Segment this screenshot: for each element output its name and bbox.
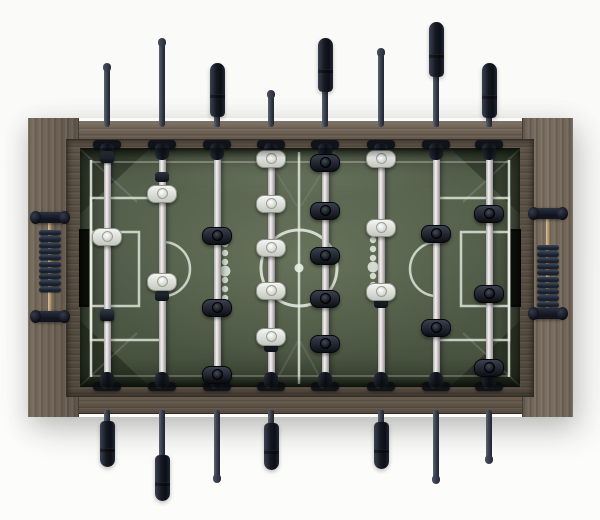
cap-knob-right bbox=[59, 310, 70, 323]
player-head bbox=[266, 198, 277, 209]
score-counter-right-bead-4 bbox=[537, 264, 559, 269]
field-bottom-shadow bbox=[80, 375, 520, 387]
score-counter-right-bead-1 bbox=[537, 245, 559, 250]
score-counter-left-bead-10 bbox=[39, 287, 61, 292]
player-head bbox=[320, 157, 331, 168]
rod-5-player-black-3 bbox=[310, 247, 340, 265]
score-counter-left-bead-8 bbox=[39, 274, 61, 279]
score-counter-right-cap-top bbox=[530, 208, 566, 219]
score-counter-left-bead-1 bbox=[39, 230, 61, 235]
cap-knob-right bbox=[59, 211, 70, 224]
rod-1-handle-grip-bottom bbox=[100, 421, 115, 467]
rod-6-handle-grip-bottom bbox=[374, 422, 389, 469]
rod-7-player-black-1 bbox=[421, 225, 451, 243]
cap-knob-right bbox=[557, 207, 568, 220]
rod-3-bottom-tip bbox=[214, 410, 220, 478]
rod-5-handle-grip-top bbox=[318, 38, 333, 92]
player-head bbox=[212, 302, 223, 313]
cap-knob-right bbox=[557, 307, 568, 320]
play-field bbox=[80, 148, 520, 387]
grip-ring bbox=[210, 94, 225, 98]
rod-3-handle-grip-top bbox=[210, 63, 225, 117]
cap-knob-left bbox=[30, 211, 41, 224]
rod-7-shaft bbox=[433, 150, 440, 382]
rod-7-bottom-tip-cap bbox=[432, 475, 440, 484]
player-head bbox=[320, 250, 331, 261]
rod-6-top-tip bbox=[378, 52, 384, 127]
player-head bbox=[431, 228, 442, 239]
rod-5-player-black-5 bbox=[310, 335, 340, 353]
rod-3-shaft bbox=[214, 150, 221, 382]
rod-3-bottom-tip-cap bbox=[213, 474, 221, 483]
grip-ring bbox=[100, 448, 115, 452]
score-counter-left-bead-3 bbox=[39, 243, 61, 248]
rod-2-stopper-2 bbox=[155, 291, 169, 301]
player-head bbox=[320, 338, 331, 349]
rod-4-player-white-3 bbox=[256, 239, 286, 257]
grip-ring bbox=[318, 69, 333, 73]
rod-6-top-tip-cap bbox=[377, 48, 385, 57]
player-head bbox=[484, 362, 495, 373]
rod-2-stopper-1 bbox=[155, 172, 169, 182]
score-counter-right-bead-10 bbox=[537, 302, 559, 307]
rod-6-shaft bbox=[378, 150, 385, 382]
player-head bbox=[320, 293, 331, 304]
foosball-table-photo bbox=[0, 0, 600, 520]
cap-knob-left bbox=[528, 207, 539, 220]
player-head bbox=[431, 322, 442, 333]
score-counter-right-bead-6 bbox=[537, 277, 559, 282]
rod-7-player-black-2 bbox=[421, 319, 451, 337]
rod-8-shaft bbox=[486, 150, 493, 382]
player-head bbox=[376, 222, 387, 233]
rod-3-player-black-1 bbox=[202, 227, 232, 245]
rod-1-top-tip bbox=[104, 67, 110, 127]
score-counter-right-bead-5 bbox=[537, 270, 559, 275]
player-head bbox=[266, 331, 277, 342]
grip-ring bbox=[429, 54, 444, 58]
rod-1-shaft bbox=[104, 150, 111, 382]
rod-7-bottom-tip bbox=[433, 410, 439, 479]
player-head bbox=[266, 242, 277, 253]
player-head bbox=[376, 286, 387, 297]
player-head bbox=[157, 188, 168, 199]
rod-3-player-black-2 bbox=[202, 299, 232, 317]
rod-8-player-black-1 bbox=[474, 205, 504, 223]
rod-6-player-white-3 bbox=[366, 283, 396, 301]
cap-knob-left bbox=[30, 310, 41, 323]
score-counter-left-bead-4 bbox=[39, 249, 61, 254]
rod-8-bottom-tip bbox=[486, 410, 492, 459]
score-counter-left-bead-2 bbox=[39, 236, 61, 241]
score-counter-left-bead-5 bbox=[39, 255, 61, 260]
rod-7-handle-grip-top bbox=[429, 22, 444, 77]
score-counter-right-cap-bottom bbox=[530, 308, 566, 319]
rod-5-player-black-2 bbox=[310, 202, 340, 220]
player-head bbox=[484, 208, 495, 219]
rod-1-bumper-3 bbox=[100, 309, 114, 321]
rod-4-player-white-2 bbox=[256, 195, 286, 213]
field-top-shadow bbox=[80, 148, 520, 158]
grip-ring bbox=[264, 450, 279, 454]
score-counter-left-cap-top bbox=[32, 212, 68, 223]
rod-4-player-white-4 bbox=[256, 282, 286, 300]
rod-8-player-black-3 bbox=[474, 359, 504, 377]
score-counter-left-cap-bottom bbox=[32, 311, 68, 322]
cap-knob-left bbox=[528, 307, 539, 320]
score-counter-left-bead-7 bbox=[39, 268, 61, 273]
score-counter-right-bead-8 bbox=[537, 289, 559, 294]
rod-2-bottom-shaft bbox=[159, 410, 165, 457]
grip-ring bbox=[155, 482, 170, 486]
player-head bbox=[320, 205, 331, 216]
goal-right bbox=[508, 229, 521, 307]
player-head bbox=[157, 276, 168, 287]
grip-ring bbox=[482, 95, 497, 99]
score-counter-right-bead-9 bbox=[537, 295, 559, 300]
score-counter-left-bead-9 bbox=[39, 280, 61, 285]
rod-1-player-white-2 bbox=[92, 228, 122, 246]
player-head bbox=[266, 285, 277, 296]
rod-4-player-white-5 bbox=[256, 328, 286, 346]
player-head bbox=[212, 230, 223, 241]
rod-2-player-white-2 bbox=[147, 273, 177, 291]
rod-4-top-tip-cap bbox=[267, 90, 275, 99]
goal-left bbox=[79, 229, 92, 307]
score-counter-right-bead-7 bbox=[537, 283, 559, 288]
rod-6-player-white-2 bbox=[366, 219, 396, 237]
rod-5-player-black-4 bbox=[310, 290, 340, 308]
player-head bbox=[102, 231, 113, 242]
rod-8-player-black-2 bbox=[474, 285, 504, 303]
score-counter-left-bead-6 bbox=[39, 262, 61, 267]
rod-8-handle-grip-top bbox=[482, 63, 497, 118]
rod-8-bottom-tip-cap bbox=[485, 455, 493, 464]
grip-ring bbox=[374, 449, 389, 453]
score-counter-right-bead-2 bbox=[537, 251, 559, 256]
rod-2-top-tip bbox=[159, 42, 165, 127]
rod-5-top-shaft bbox=[322, 90, 328, 127]
rod-2-player-white-1 bbox=[147, 185, 177, 203]
rod-2-top-tip-cap bbox=[158, 38, 166, 47]
rod-1-top-tip-cap bbox=[103, 63, 111, 72]
score-counter-right-bead-3 bbox=[537, 258, 559, 263]
player-head bbox=[484, 288, 495, 299]
rod-2-handle-grip-bottom bbox=[155, 455, 170, 501]
rod-7-top-shaft bbox=[433, 75, 439, 127]
rod-4-handle-grip-bottom bbox=[264, 423, 279, 470]
